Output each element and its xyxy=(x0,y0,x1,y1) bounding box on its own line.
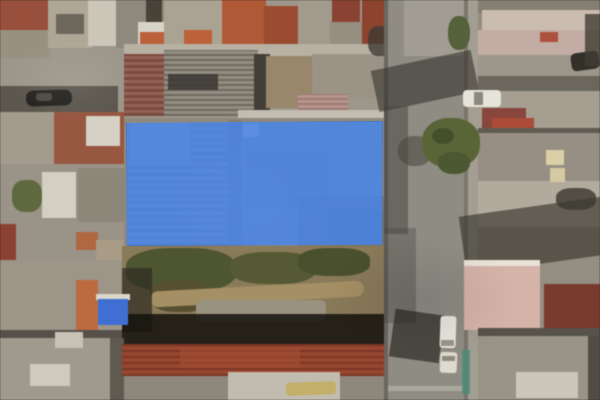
parcel-structure xyxy=(228,120,242,246)
truck-yellow xyxy=(286,381,336,396)
row-roof-pink xyxy=(482,10,600,32)
car-windshield xyxy=(474,92,483,105)
rooftop xyxy=(78,168,124,222)
skylight-cream xyxy=(546,150,564,165)
parcel-structure xyxy=(330,210,385,246)
row-seam xyxy=(478,328,600,336)
row-roof-dark xyxy=(478,76,600,91)
lot-shadow xyxy=(122,314,392,348)
rooftop-dark xyxy=(56,14,84,34)
rooftop-white xyxy=(86,116,120,146)
dark-gap xyxy=(588,336,600,400)
satellite-imagery xyxy=(0,0,600,400)
rooftop-white xyxy=(88,0,118,46)
row-roof xyxy=(478,133,600,181)
rooftop-tan xyxy=(96,240,124,260)
dark-object xyxy=(585,14,600,66)
blue-tarp-roof xyxy=(98,299,128,325)
rooftop-red xyxy=(0,0,52,32)
red-spot xyxy=(540,32,558,42)
tree-dark xyxy=(432,128,454,144)
rooftop-brick xyxy=(124,54,168,116)
tree xyxy=(448,16,470,50)
tree xyxy=(438,152,470,174)
street-shadow xyxy=(389,309,445,363)
parcel-structure xyxy=(130,124,190,164)
parcel-skylight xyxy=(243,124,259,137)
corrugated-dark-patch xyxy=(168,74,218,90)
rooftop-terracotta xyxy=(76,232,98,250)
rooftop-white xyxy=(42,172,76,218)
car-white xyxy=(440,352,458,374)
car-roof-highlight xyxy=(36,93,52,101)
van-windshield xyxy=(441,340,454,346)
building-pink xyxy=(464,266,540,330)
satellite-map[interactable] xyxy=(0,0,600,400)
rooftop xyxy=(0,112,56,164)
rooftop xyxy=(0,30,50,58)
rooftop-white xyxy=(55,332,83,348)
rooftop-red xyxy=(332,0,360,22)
skylight-cream xyxy=(550,168,565,182)
rooftop-white xyxy=(516,372,578,398)
yard-green xyxy=(12,180,42,212)
road-marking xyxy=(388,386,464,391)
rooftop-white xyxy=(30,364,70,386)
car-windshield xyxy=(442,356,455,361)
rooftop-red xyxy=(0,224,16,264)
teal-fence xyxy=(462,350,470,394)
scrub-vegetation xyxy=(298,248,370,276)
red-tile-light xyxy=(180,348,300,368)
street-shadow xyxy=(384,106,408,234)
building-orange xyxy=(76,280,98,330)
map-viewport xyxy=(0,0,600,400)
